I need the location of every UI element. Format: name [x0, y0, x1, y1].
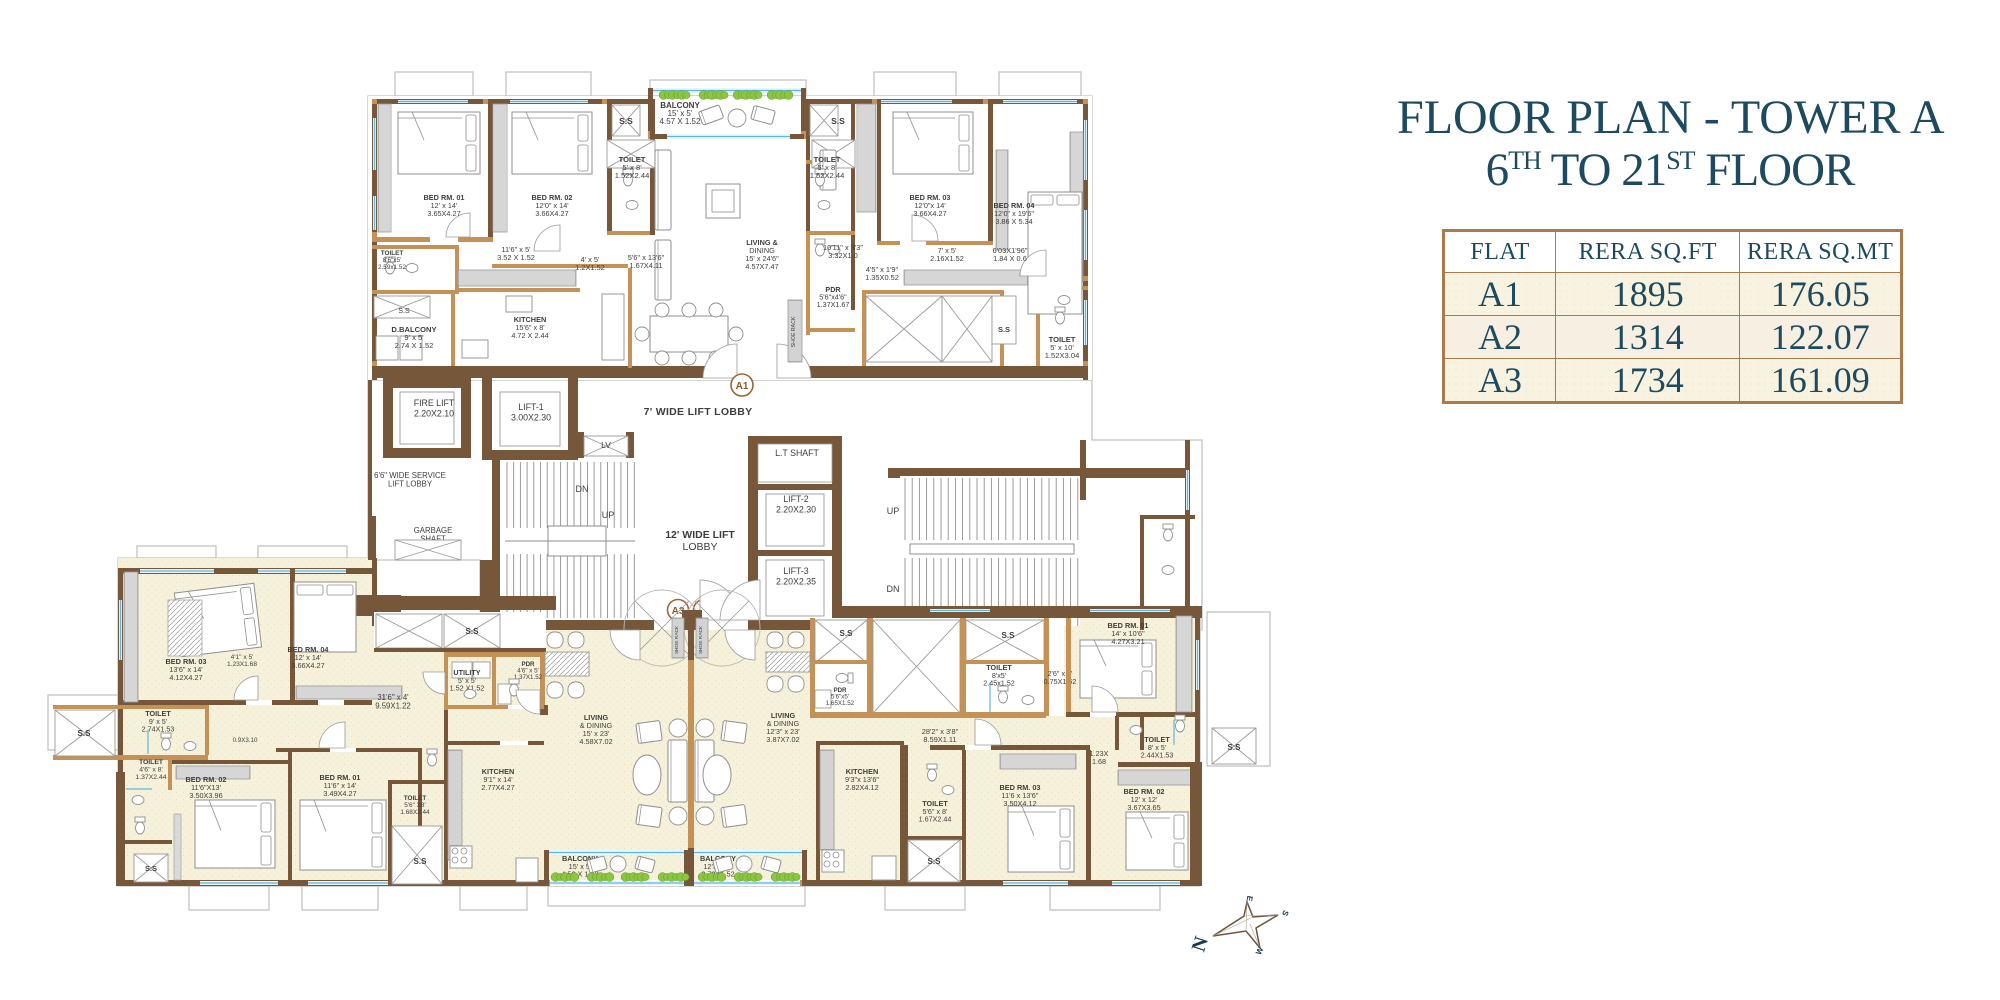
- svg-text:2.44X1.53: 2.44X1.53: [1141, 751, 1174, 760]
- svg-text:4.58X7.02: 4.58X7.02: [579, 737, 612, 746]
- svg-text:S.S: S.S: [998, 325, 1010, 334]
- svg-text:3.32X1.0: 3.32X1.0: [828, 251, 858, 260]
- svg-text:1.35X0.52: 1.35X0.52: [865, 273, 899, 282]
- svg-text:3.50X4.12: 3.50X4.12: [1003, 799, 1036, 808]
- svg-text:1.52X2.44: 1.52X2.44: [810, 171, 845, 180]
- svg-text:TOILET: TOILET: [139, 759, 164, 766]
- svg-text:LIFT LOBBY: LIFT LOBBY: [388, 480, 433, 489]
- svg-text:1.67X2.44: 1.67X2.44: [919, 815, 952, 824]
- svg-text:TOILET: TOILET: [381, 250, 404, 257]
- svg-text:S.S: S.S: [840, 629, 854, 638]
- svg-text:3.65X4.27: 3.65X4.27: [427, 209, 460, 218]
- svg-text:2.20X2.30: 2.20X2.30: [776, 505, 816, 515]
- svg-text:1.84 X 0.6: 1.84 X 0.6: [993, 254, 1027, 263]
- svg-text:S.S: S.S: [414, 857, 428, 866]
- svg-text:LIFT-3: LIFT-3: [783, 566, 809, 576]
- svg-text:4.27X3.21: 4.27X3.21: [1111, 637, 1144, 646]
- svg-text:S.S: S.S: [145, 864, 157, 873]
- svg-text:UP: UP: [887, 506, 900, 516]
- svg-text:1.37X2.44: 1.37X2.44: [136, 774, 167, 781]
- svg-text:3.87X7.02: 3.87X7.02: [766, 735, 799, 744]
- svg-text:2.59x1.52: 2.59x1.52: [378, 264, 407, 271]
- svg-text:1.67X4.11: 1.67X4.11: [629, 261, 662, 270]
- svg-text:4.12X4.27: 4.12X4.27: [169, 673, 202, 682]
- svg-text:1.52X3.04: 1.52X3.04: [1045, 351, 1080, 360]
- svg-text:1.65X1.52: 1.65X1.52: [826, 700, 855, 707]
- svg-text:LOBBY: LOBBY: [682, 541, 717, 553]
- svg-text:1.2X1.52: 1.2X1.52: [575, 263, 605, 272]
- svg-text:S: S: [1280, 909, 1291, 918]
- svg-text:N: N: [1188, 933, 1214, 954]
- svg-text:LV: LV: [601, 440, 611, 450]
- svg-text:2.16X1.52: 2.16X1.52: [930, 254, 964, 263]
- svg-text:TOILET: TOILET: [404, 795, 427, 802]
- svg-text:3.66X4.27: 3.66X4.27: [291, 661, 324, 670]
- svg-text:1.68: 1.68: [1092, 757, 1106, 766]
- svg-text:S.S: S.S: [1002, 631, 1016, 640]
- svg-text:S.S: S.S: [398, 308, 410, 315]
- svg-text:2.20X2.10: 2.20X2.10: [414, 409, 454, 419]
- svg-text:4.72 X 2.44: 4.72 X 2.44: [511, 331, 548, 340]
- svg-text:2.74 X 1.52: 2.74 X 1.52: [395, 341, 434, 350]
- svg-text:DN: DN: [576, 484, 589, 494]
- svg-text:4.57X7.47: 4.57X7.47: [745, 262, 778, 271]
- svg-text:UP: UP: [602, 510, 615, 520]
- svg-text:3.67X3.65: 3.67X3.65: [1127, 803, 1160, 812]
- svg-text:SHOE RACK: SHOE RACK: [698, 625, 704, 654]
- svg-text:1.37X1.67: 1.37X1.67: [817, 300, 850, 309]
- svg-text:FIRE LIFT: FIRE LIFT: [414, 398, 455, 408]
- svg-text:0.75X1.52: 0.75X1.52: [1044, 677, 1077, 686]
- svg-text:7' WIDE LIFT LOBBY: 7' WIDE LIFT LOBBY: [644, 406, 753, 418]
- svg-text:2.82X4.12: 2.82X4.12: [845, 783, 878, 792]
- svg-text:SHOE RACK: SHOE RACK: [791, 316, 797, 347]
- svg-text:3.50X3.96: 3.50X3.96: [189, 791, 222, 800]
- svg-text:LIFT-2: LIFT-2: [783, 494, 809, 504]
- svg-text:S.S: S.S: [466, 627, 480, 636]
- svg-text:8'6"x5': 8'6"x5': [383, 257, 402, 264]
- svg-text:S.S: S.S: [78, 729, 92, 738]
- svg-text:2.74X1.53: 2.74X1.53: [142, 725, 175, 734]
- svg-text:1.68X2.44: 1.68X2.44: [400, 809, 430, 816]
- svg-text:S.S: S.S: [928, 857, 942, 866]
- svg-text:3.52 X 1.52: 3.52 X 1.52: [497, 253, 535, 262]
- svg-text:A1: A1: [736, 381, 749, 392]
- svg-text:2.77X4.27: 2.77X4.27: [481, 783, 514, 792]
- svg-text:E: E: [1244, 895, 1254, 902]
- svg-text:12' WIDE LIFT: 12' WIDE LIFT: [665, 529, 735, 541]
- svg-text:4'6" x 8': 4'6" x 8': [139, 766, 163, 773]
- svg-text:DN: DN: [887, 584, 900, 594]
- svg-text:S.S: S.S: [1228, 743, 1242, 752]
- svg-text:SHOE RACK: SHOE RACK: [674, 625, 680, 654]
- svg-text:W: W: [1254, 945, 1266, 956]
- svg-text:2.20X2.35: 2.20X2.35: [776, 577, 816, 587]
- svg-text:LIFT-1: LIFT-1: [518, 402, 544, 412]
- svg-text:1.52X2.44: 1.52X2.44: [615, 171, 650, 180]
- svg-text:9.59X1.22: 9.59X1.22: [375, 702, 411, 711]
- svg-text:4.57 X 1.52: 4.57 X 1.52: [660, 117, 701, 126]
- svg-text:0.9X3.10: 0.9X3.10: [233, 737, 258, 744]
- svg-text:S.S: S.S: [831, 116, 845, 126]
- svg-text:4'1" x 5': 4'1" x 5': [231, 654, 254, 661]
- svg-text:L.T SHAFT: L.T SHAFT: [775, 448, 819, 458]
- svg-text:8.59X1.11: 8.59X1.11: [923, 735, 956, 744]
- svg-text:3.66X4.27: 3.66X4.27: [535, 209, 568, 218]
- svg-text:2.45x1.52: 2.45x1.52: [983, 679, 1015, 688]
- svg-text:1.23X1.68: 1.23X1.68: [227, 661, 257, 668]
- svg-text:3.49X4.27: 3.49X4.27: [323, 789, 356, 798]
- svg-text:S.S: S.S: [619, 116, 633, 126]
- svg-text:3.66X4.27: 3.66X4.27: [913, 209, 946, 218]
- svg-text:5'6" X8': 5'6" X8': [404, 802, 425, 809]
- svg-text:3.86 X 5.34: 3.86 X 5.34: [995, 217, 1032, 226]
- svg-text:3.00X2.30: 3.00X2.30: [511, 413, 551, 423]
